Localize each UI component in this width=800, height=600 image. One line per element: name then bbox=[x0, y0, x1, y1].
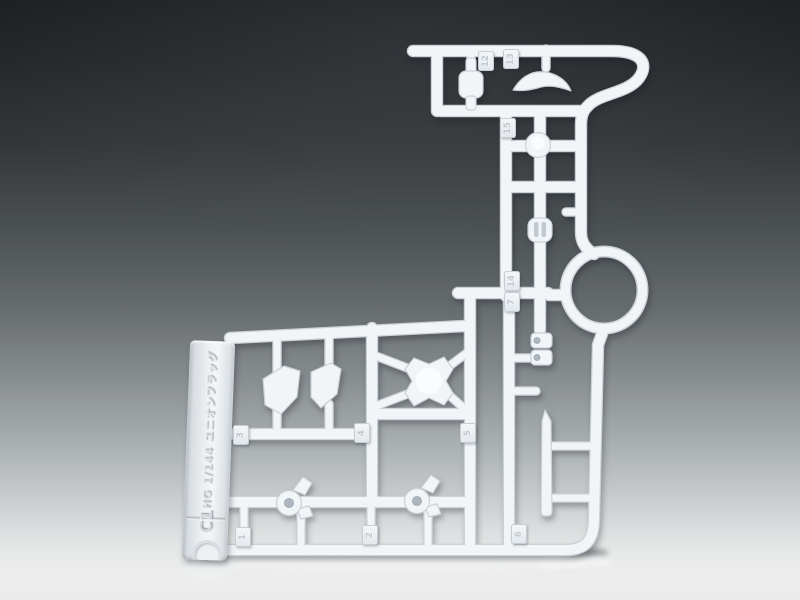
part-tag-13: 13 bbox=[503, 49, 519, 69]
slotted-cylinder-part bbox=[528, 218, 552, 242]
winglet-part bbox=[513, 72, 571, 91]
x-dome-part bbox=[405, 357, 453, 406]
sprue-runner bbox=[0, 0, 800, 600]
part-tag-5: 5 bbox=[460, 423, 476, 443]
part-tag-4: 4 bbox=[354, 423, 370, 443]
ring-part bbox=[566, 252, 643, 329]
runner-nameplate: HG 1/144 ユニオンフラッグ C1 bbox=[182, 340, 235, 561]
runner-code: C1 bbox=[182, 500, 229, 544]
part-tag-12: 12 bbox=[478, 51, 494, 71]
armor-plate-left bbox=[263, 366, 300, 414]
disc-part bbox=[526, 133, 551, 158]
kit-label: HG 1/144 ユニオンフラッグ bbox=[184, 344, 235, 516]
part-tag-14: 14 bbox=[504, 271, 520, 291]
part-tag-2: 2 bbox=[362, 525, 378, 545]
blade-part bbox=[541, 410, 552, 516]
part-tag-15: 15 bbox=[500, 118, 516, 138]
photo-stage: HG 1/144 ユニオンフラッグ C1 12 13 15 14 7 3 4 5… bbox=[0, 0, 800, 600]
part-tag-1: 1 bbox=[235, 527, 251, 547]
kit-label-text: HG 1/144 ユニオンフラッグ bbox=[199, 351, 220, 510]
hinge-part bbox=[531, 333, 552, 365]
part-tag-7: 7 bbox=[504, 292, 520, 312]
part-tag-6: 6 bbox=[511, 524, 527, 544]
part-tag-3: 3 bbox=[233, 425, 249, 445]
runner-code-text: C1 bbox=[196, 510, 216, 534]
runner-frame-rails bbox=[205, 49, 643, 550]
armor-plate-right bbox=[311, 363, 341, 408]
